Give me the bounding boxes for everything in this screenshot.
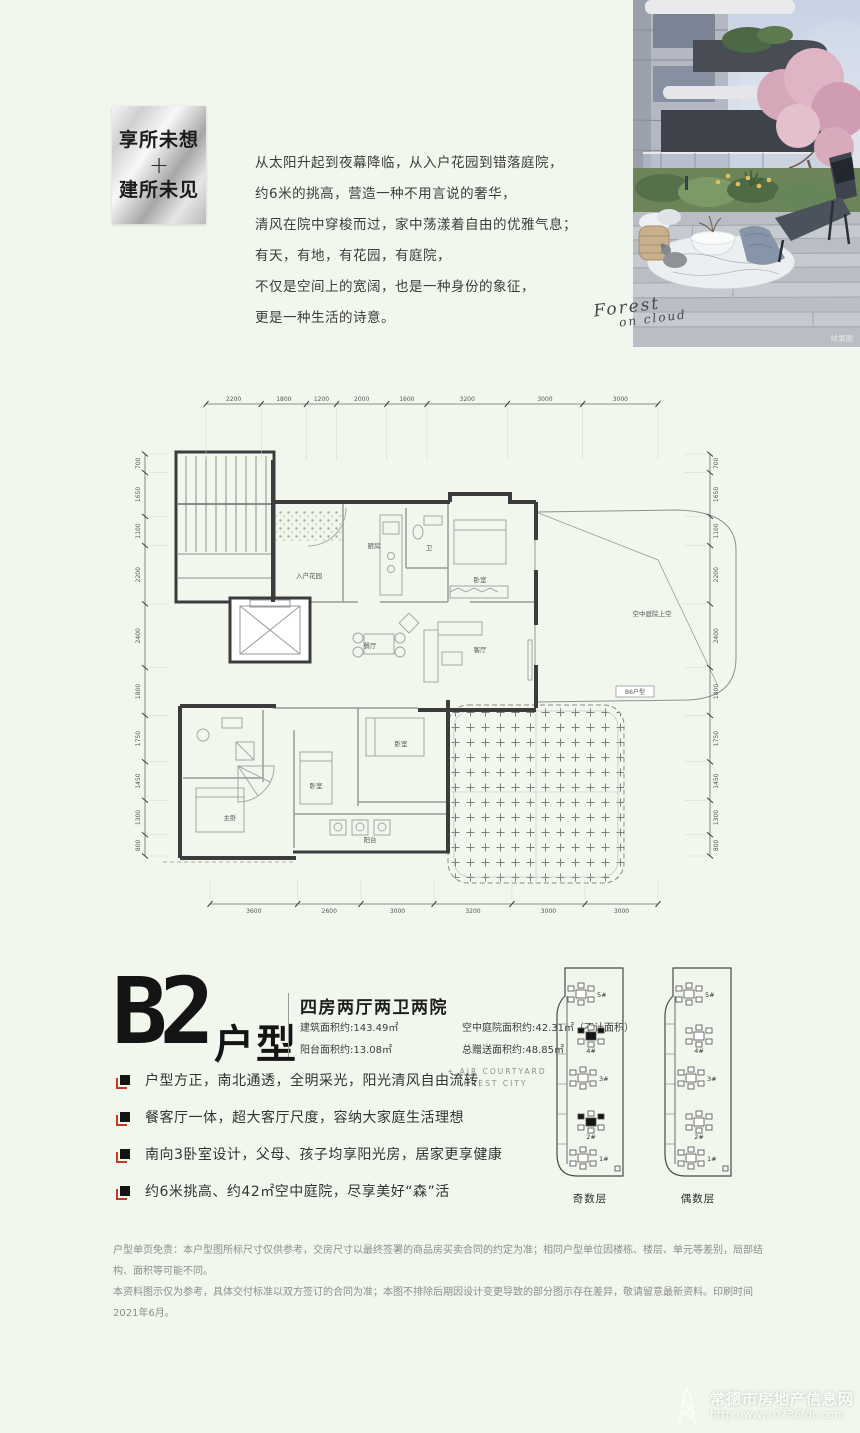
svg-text:2000: 2000 — [354, 396, 369, 403]
svg-text:3000: 3000 — [390, 908, 405, 915]
svg-text:2600: 2600 — [322, 908, 337, 915]
tower-label: 3# — [707, 1075, 717, 1083]
tower-label: 1# — [707, 1155, 717, 1163]
site-panel-caption: 偶数层 — [681, 1191, 716, 1206]
area-stat: 建筑面积约:143.49㎡ — [300, 1019, 450, 1034]
selling-points: 户型方正，南北通透，全明采光，阳光清风自由流转餐客厅一体，超大客厅尺度，容纳大家… — [120, 1069, 590, 1217]
svg-text:1800: 1800 — [135, 684, 142, 699]
intro-line: 从太阳升起到夜幕降临，从入户花园到错落庭院， — [255, 156, 635, 170]
svg-text:800: 800 — [135, 839, 142, 851]
disclaimer-line-2: 本资料图示仅为参考，具体交付标准以双方签订的合同为准；本图不排除后期因设计变更导… — [113, 1282, 773, 1324]
selling-point-text: 约6米挑高、约42㎡空中庭院，尽享美好“森”活 — [145, 1181, 450, 1201]
tower-label: 4# — [694, 1047, 704, 1055]
watermark-title: 常德市房地产信息网 — [710, 1391, 854, 1407]
site-panel: 5#4#3#2#1#奇数层 — [551, 964, 629, 1206]
dimension-lines: 2200180012002000160032003000300036002600… — [135, 396, 720, 915]
intro-line: 有天，有地，有花园，有庭院， — [255, 249, 635, 263]
svg-text:1600: 1600 — [399, 396, 414, 403]
site-panel-svg: 5#4#3#2#1# — [551, 964, 629, 1186]
bullet-square-icon — [120, 1149, 130, 1159]
svg-text:2200: 2200 — [713, 567, 720, 582]
room-label: 主卧 — [224, 813, 238, 822]
svg-text:1800: 1800 — [713, 684, 720, 699]
svg-text:1450: 1450 — [135, 773, 142, 788]
selling-point-row: 餐客厅一体，超大客厅尺度，容纳大家庭生活理想 — [120, 1106, 590, 1128]
bullet-square-icon — [120, 1112, 130, 1122]
unit-type-suffix: 户型 — [214, 1012, 298, 1070]
disclaimer: 户型单页免责：本户型图所标尺寸仅供参考，交房尺寸以最终签署的商品房买卖合同的约定… — [113, 1240, 773, 1324]
watermark-url: http://www.0736fdc.com — [710, 1407, 854, 1423]
tower-label: 3# — [599, 1075, 609, 1083]
intro-line: 更是一种生活的诗意。 — [255, 311, 635, 325]
room-label: 卧室 — [310, 781, 324, 790]
room-label: 卧室 — [474, 575, 488, 584]
svg-text:1200: 1200 — [314, 396, 329, 403]
selling-point-text: 餐客厅一体，超大客厅尺度，容纳大家庭生活理想 — [145, 1107, 464, 1127]
selling-point-row: 户型方正，南北通透，全明采光，阳光清风自由流转 — [120, 1069, 590, 1091]
intro-line: 约6米的挑高，营造一种不用言说的奢华， — [255, 187, 635, 201]
tower-label: 2# — [694, 1133, 704, 1141]
svg-text:1800: 1800 — [276, 396, 291, 403]
svg-text:1300: 1300 — [135, 810, 142, 825]
floor-plan-svg: B6户型 22001800120020001600320030003000360… — [118, 390, 748, 935]
title-divider — [288, 993, 289, 1057]
svg-text:3000: 3000 — [613, 396, 628, 403]
room-label: 入户花园 — [296, 571, 322, 580]
svg-text:1300: 1300 — [713, 810, 720, 825]
room-label: 餐厅 — [364, 641, 378, 650]
svg-text:1750: 1750 — [135, 731, 142, 746]
selling-point-text: 南向3卧室设计，父母、孩子均享阳光房，居家更享健康 — [145, 1144, 502, 1164]
intro-paragraph: 从太阳升起到夜幕降临，从入户花园到错落庭院，约6米的挑高，营造一种不用言说的奢华… — [255, 156, 635, 342]
intro-line: 清风在院中穿梭而过，家中荡漾着自由的优雅气息； — [255, 218, 635, 232]
svg-text:700: 700 — [135, 457, 142, 469]
selling-point-row: 南向3卧室设计，父母、孩子均享阳光房，居家更享健康 — [120, 1143, 590, 1165]
svg-text:700: 700 — [713, 457, 720, 469]
adjacent-unit-label: B6户型 — [625, 688, 645, 696]
svg-text:2200: 2200 — [135, 567, 142, 582]
watermark-building-icon — [669, 1387, 705, 1427]
svg-text:3000: 3000 — [614, 908, 629, 915]
svg-text:3000: 3000 — [537, 396, 552, 403]
site-panel: 5#4#3#2#1#偶数层 — [659, 964, 737, 1206]
room-label: 卧室 — [395, 739, 409, 748]
bullet-square-icon — [120, 1075, 130, 1085]
svg-text:2400: 2400 — [135, 628, 142, 643]
area-stat: 阳台面积约:13.08㎡ — [300, 1041, 450, 1056]
slogan-line-2: 建所未见 — [119, 177, 199, 203]
svg-text:1650: 1650 — [713, 487, 720, 502]
tower-label: 4# — [586, 1047, 596, 1055]
svg-text:1100: 1100 — [713, 523, 720, 538]
selling-point-row: 约6米挑高、约42㎡空中庭院，尽享美好“森”活 — [120, 1180, 590, 1202]
svg-text:1450: 1450 — [713, 773, 720, 788]
room-label: 空中庭院上空 — [633, 609, 673, 618]
room-label: 厨房 — [368, 541, 381, 550]
slogan-badge: 享所未想 + 建所未见 — [112, 106, 206, 224]
bullet-square-icon — [120, 1186, 130, 1196]
svg-text:3200: 3200 — [465, 908, 480, 915]
tower-label: 1# — [599, 1155, 609, 1163]
room-label: 卫 — [426, 544, 433, 552]
site-diagrams: 5#4#3#2#1#奇数层5#4#3#2#1#偶数层 — [551, 964, 737, 1206]
unit-subtitle: 四房两厅两卫两院 — [300, 993, 448, 1018]
tower-label: 5# — [705, 991, 715, 999]
svg-text:2200: 2200 — [226, 396, 241, 403]
intro-line: 不仅是空间上的宽阔，也是一种身份的象征， — [255, 280, 635, 294]
unit-code: B2 — [112, 966, 207, 1058]
room-label: 阳台 — [364, 835, 377, 844]
photo-caption: 效果图 — [831, 333, 854, 343]
svg-text:2400: 2400 — [713, 628, 720, 643]
selling-point-text: 户型方正，南北通透，全明采光，阳光清风自由流转 — [145, 1070, 479, 1090]
disclaimer-line-1: 户型单页免责：本户型图所标尺寸仅供参考，交房尺寸以最终签署的商品房买卖合同的约定… — [113, 1240, 773, 1282]
tower-label: 5# — [597, 991, 607, 999]
svg-text:3600: 3600 — [246, 908, 261, 915]
svg-text:800: 800 — [713, 839, 720, 851]
flyer-page: 享所未想 + 建所未见 从太阳升起到夜幕降临，从入户花园到错落庭院，约6米的挑高… — [0, 0, 860, 1433]
tower-label: 2# — [586, 1133, 596, 1141]
svg-text:3000: 3000 — [541, 908, 556, 915]
slogan-line-1: 享所未想 — [119, 127, 199, 153]
svg-text:1750: 1750 — [713, 731, 720, 746]
floor-plan: B6户型 22001800120020001600320030003000360… — [118, 390, 748, 935]
plus-divider: + — [149, 154, 169, 176]
site-panel-svg: 5#4#3#2#1# — [659, 964, 737, 1186]
room-label: 客厅 — [474, 645, 488, 654]
svg-text:1100: 1100 — [135, 523, 142, 538]
watermark: 常德市房地产信息网 http://www.0736fdc.com — [669, 1387, 854, 1427]
svg-text:1650: 1650 — [135, 487, 142, 502]
site-panel-caption: 奇数层 — [573, 1191, 608, 1206]
svg-text:3200: 3200 — [460, 396, 475, 403]
